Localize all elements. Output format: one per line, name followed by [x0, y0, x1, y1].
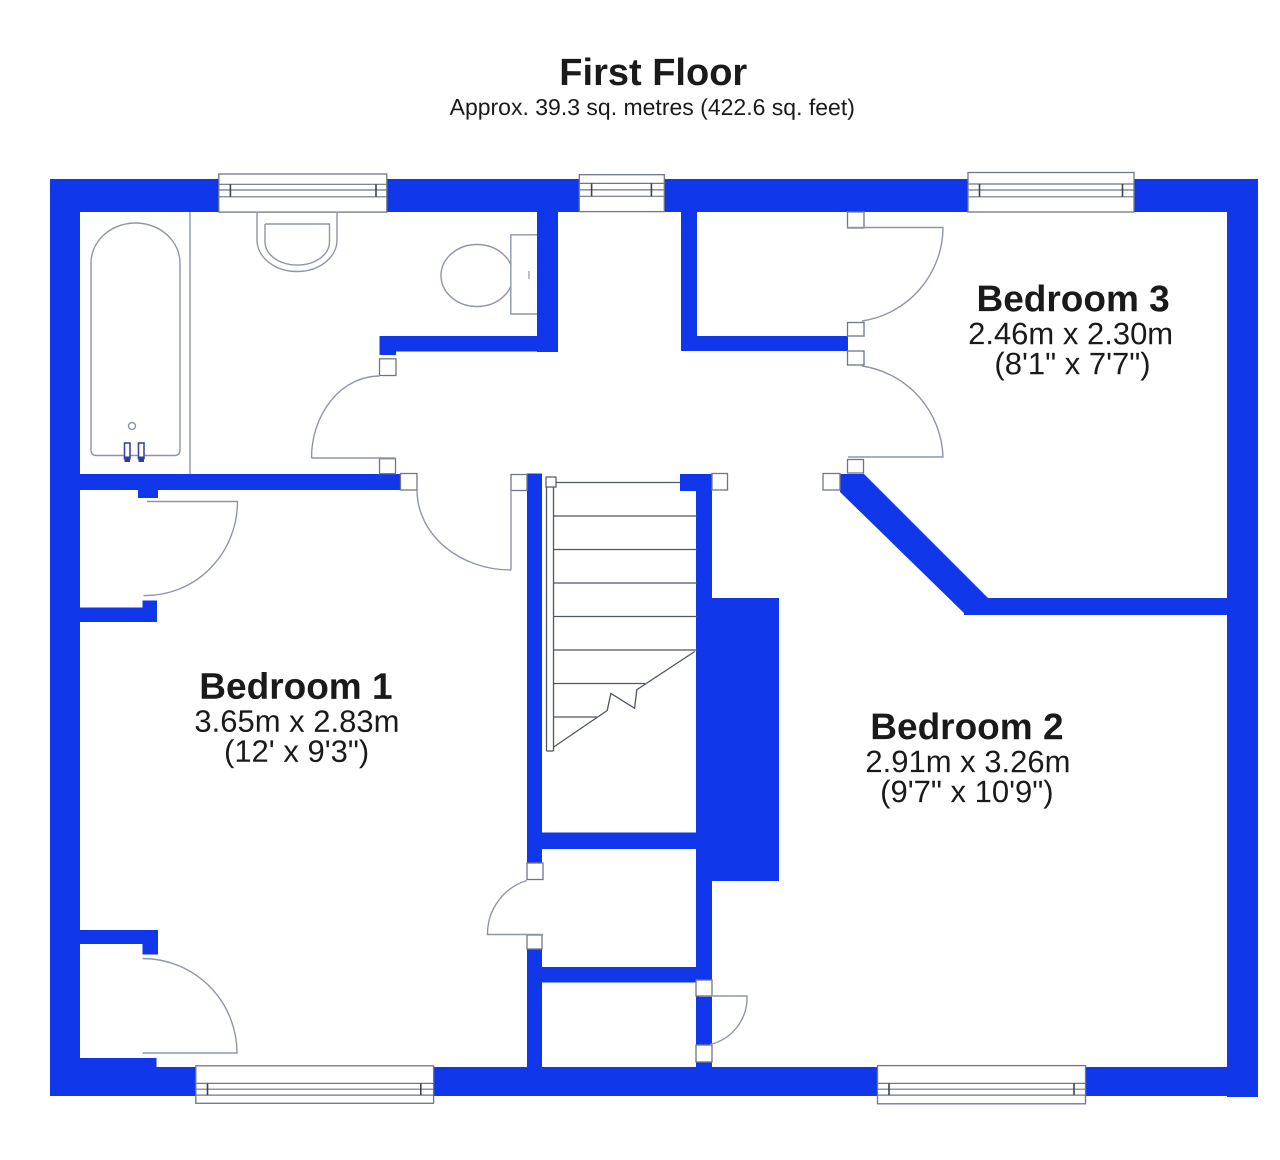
svg-text:First Floor: First Floor [559, 52, 747, 94]
svg-text:Approx. 39.3 sq. metres (422.6: Approx. 39.3 sq. metres (422.6 sq. feet) [450, 94, 855, 120]
svg-text:Bedroom 2: Bedroom 2 [870, 706, 1063, 747]
svg-text:Bedroom 3: Bedroom 3 [977, 278, 1170, 319]
svg-text:(9'7" x 10'9"): (9'7" x 10'9") [880, 774, 1053, 809]
svg-text:(8'1" x 7'7"): (8'1" x 7'7") [994, 346, 1150, 381]
svg-text:(12' x 9'3"): (12' x 9'3") [224, 734, 369, 769]
svg-text:Bedroom 1: Bedroom 1 [199, 666, 392, 707]
